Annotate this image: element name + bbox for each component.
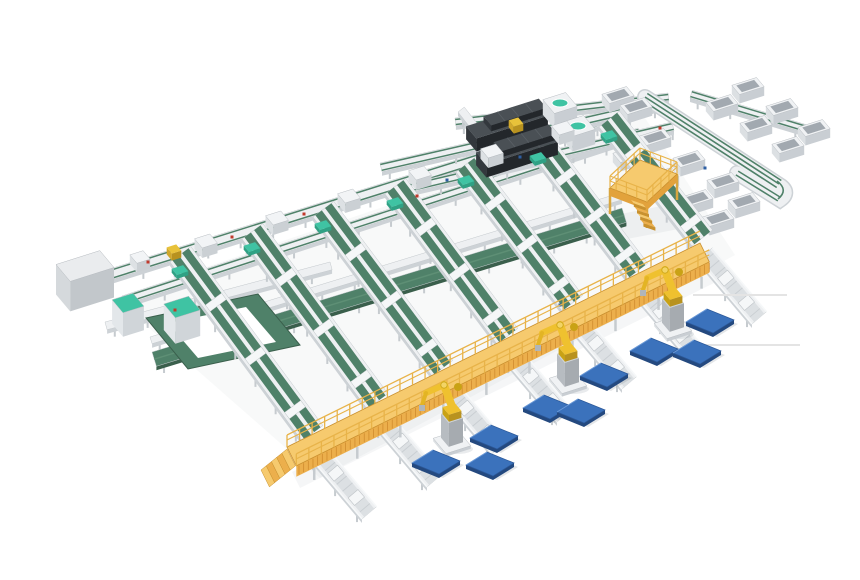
control-cabinet: [56, 251, 114, 312]
tote-bin: [772, 137, 804, 163]
accent-dot: [147, 261, 150, 264]
tote-bin: [740, 116, 772, 142]
accent-dot: [174, 309, 177, 312]
tote-bin: [707, 173, 739, 199]
sorting-facility-scene: [0, 0, 860, 580]
pallet: [466, 452, 518, 480]
pallet: [686, 309, 738, 337]
accent-dot: [231, 236, 234, 239]
accent-dot: [416, 195, 419, 198]
tote-bin: [728, 193, 760, 219]
factory-render: [0, 0, 860, 580]
accent-dot: [704, 167, 707, 170]
tote-bin: [673, 151, 705, 177]
accent-dot: [446, 179, 449, 182]
accent-dot: [519, 156, 522, 159]
accent-dot: [659, 127, 662, 130]
accent-dot: [303, 213, 306, 216]
tote-bin: [732, 78, 764, 104]
